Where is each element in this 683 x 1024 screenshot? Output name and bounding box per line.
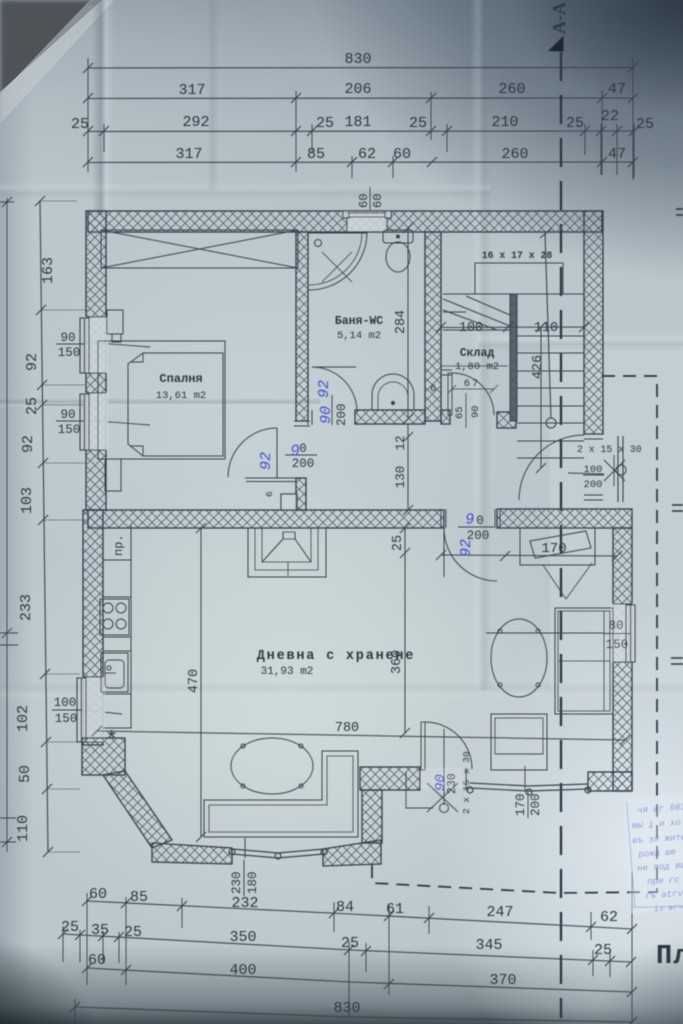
svg-text:Склад: Склад — [460, 347, 495, 360]
svg-text:260: 260 — [501, 146, 528, 163]
svg-text:60: 60 — [89, 886, 107, 903]
svg-text:5,14 m2: 5,14 m2 — [337, 330, 381, 342]
svg-text:47: 47 — [608, 81, 626, 98]
svg-text:163: 163 — [40, 257, 57, 284]
svg-text:92: 92 — [20, 435, 37, 453]
svg-text:25: 25 — [409, 115, 427, 132]
svg-text:150: 150 — [58, 346, 81, 360]
svg-text:2 x 15 x 30: 2 x 15 x 30 — [577, 444, 642, 455]
svg-text:84: 84 — [336, 899, 354, 916]
svg-text:25: 25 — [124, 924, 142, 941]
svg-text:100: 100 — [54, 696, 77, 710]
svg-text:317: 317 — [178, 82, 205, 99]
svg-text:22: 22 — [601, 108, 619, 125]
svg-text:90: 90 — [470, 405, 482, 418]
svg-text:25: 25 — [594, 942, 612, 959]
svg-text:232: 232 — [231, 895, 258, 912]
svg-text:200: 200 — [584, 479, 603, 491]
svg-text:25: 25 — [566, 115, 584, 132]
svg-text:170: 170 — [541, 541, 566, 557]
svg-text:62: 62 — [600, 909, 618, 926]
svg-text:284: 284 — [394, 310, 409, 334]
svg-text:65: 65 — [454, 406, 466, 419]
svg-text:345: 345 — [475, 937, 502, 954]
svg-text:13,61 m2: 13,61 m2 — [156, 390, 206, 402]
svg-text:170: 170 — [514, 793, 528, 816]
svg-text:35: 35 — [91, 922, 109, 939]
svg-text:233: 233 — [18, 594, 35, 621]
svg-text:181: 181 — [344, 114, 371, 131]
svg-text:12: 12 — [394, 435, 408, 450]
svg-text:210: 210 — [491, 114, 518, 131]
svg-text:Спалня: Спалня — [159, 372, 202, 386]
svg-text:щп: щп — [662, 161, 673, 171]
svg-text:150: 150 — [58, 423, 81, 437]
svg-text:92: 92 — [24, 353, 41, 371]
svg-text:1,80 m2: 1,80 m2 — [455, 361, 499, 373]
svg-text:80: 80 — [608, 619, 623, 633]
svg-text:92: 92 — [258, 452, 275, 470]
svg-text:нщ: нщ — [662, 129, 672, 139]
svg-text:102: 102 — [15, 705, 32, 732]
svg-text:200: 200 — [335, 403, 349, 426]
svg-text:103: 103 — [19, 487, 36, 514]
svg-text:370: 370 — [489, 972, 516, 989]
svg-text:67: 67 — [464, 378, 481, 390]
svg-text:25: 25 — [61, 919, 79, 936]
svg-text:Баня-WC: Баня-WC — [335, 315, 383, 328]
svg-text:31,93 m2: 31,93 m2 — [261, 666, 314, 678]
svg-text:100: 100 — [459, 321, 483, 336]
svg-text:780: 780 — [335, 721, 359, 736]
svg-text:16 x 17 x 28: 16 x 17 x 28 — [482, 250, 553, 261]
svg-text:130: 130 — [394, 466, 408, 489]
svg-text:470: 470 — [187, 669, 202, 693]
svg-text:А-А: А-А — [549, 2, 569, 34]
svg-text:92: 92 — [316, 380, 333, 398]
svg-text:60: 60 — [371, 194, 385, 208]
svg-text:60: 60 — [357, 194, 371, 208]
svg-text:6: 6 — [264, 491, 275, 497]
svg-text:85: 85 — [307, 146, 325, 163]
svg-text:85: 85 — [130, 889, 148, 906]
svg-text:щ п: щ п — [663, 113, 679, 123]
svg-text:ш і: ш і — [665, 145, 681, 155]
svg-text:60: 60 — [88, 952, 106, 969]
svg-text:90: 90 — [60, 331, 75, 345]
svg-text:9: 9 — [464, 511, 475, 529]
svg-text:400: 400 — [229, 962, 256, 979]
svg-text:426: 426 — [531, 355, 546, 379]
svg-text:180: 180 — [246, 871, 260, 894]
svg-text:90: 90 — [433, 774, 449, 791]
svg-text:350: 350 — [229, 929, 256, 946]
svg-text:25: 25 — [71, 116, 89, 133]
svg-text:50: 50 — [17, 765, 34, 783]
svg-text:360: 360 — [390, 650, 405, 674]
svg-text:25: 25 — [24, 397, 41, 415]
svg-text:292: 292 — [182, 114, 209, 131]
svg-text:Пл: Пл — [656, 942, 683, 972]
svg-text:830: 830 — [344, 51, 371, 68]
svg-text:230: 230 — [230, 871, 244, 894]
svg-text:25: 25 — [341, 935, 359, 952]
svg-text:830: 830 — [333, 1000, 360, 1017]
svg-text:įз вгч: įз вгч — [654, 903, 683, 914]
svg-text:247: 247 — [486, 904, 513, 921]
svg-text:47: 47 — [608, 146, 626, 163]
svg-text:90: 90 — [60, 408, 75, 422]
svg-text:92: 92 — [458, 539, 475, 557]
svg-text:110: 110 — [534, 321, 558, 336]
svg-text:260: 260 — [498, 81, 525, 98]
svg-text:25: 25 — [316, 115, 334, 132]
svg-text:62: 62 — [358, 146, 376, 163]
svg-text:2 x 15 x 30: 2 x 15 x 30 — [461, 751, 472, 814]
svg-text:317: 317 — [175, 146, 202, 163]
svg-text:110: 110 — [15, 815, 32, 842]
svg-text:200: 200 — [529, 793, 543, 816]
svg-text:90: 90 — [318, 406, 335, 424]
svg-text:6: 6 — [430, 383, 436, 395]
svg-text:61: 61 — [386, 901, 404, 918]
svg-text:150: 150 — [55, 712, 78, 726]
svg-text:206: 206 — [344, 81, 371, 98]
svg-text:25: 25 — [391, 535, 406, 551]
svg-text:60: 60 — [393, 146, 411, 163]
svg-text:0: 0 — [476, 514, 484, 528]
svg-text:150: 150 — [606, 638, 629, 652]
svg-text:25: 25 — [636, 116, 654, 133]
svg-text:пр.: пр. — [112, 534, 126, 556]
